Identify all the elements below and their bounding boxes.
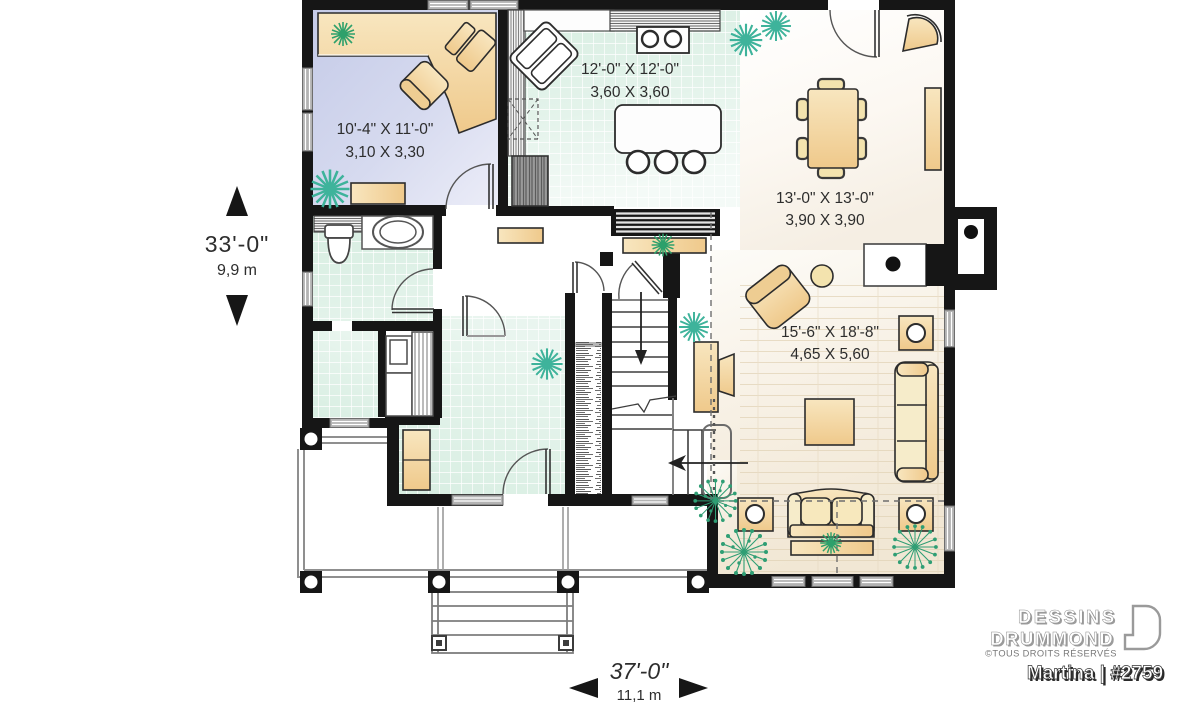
svg-text:4,65 X 5,60: 4,65 X 5,60: [790, 346, 870, 363]
svg-text:11,1 m: 11,1 m: [617, 687, 662, 704]
svg-text:15'-6" X 18'-8": 15'-6" X 18'-8": [781, 324, 879, 341]
svg-text:10'-4" X 11'-0": 10'-4" X 11'-0": [337, 121, 434, 138]
svg-text:13'-0" X 13'-0": 13'-0" X 13'-0": [776, 190, 874, 207]
svg-text:DRUMMOND: DRUMMOND: [990, 628, 1114, 649]
svg-text:12'-0" X 12'-0": 12'-0" X 12'-0": [581, 61, 679, 78]
svg-text:3,60 X 3,60: 3,60 X 3,60: [590, 84, 670, 101]
svg-text:©TOUS DROITS RÉSERVÉS: ©TOUS DROITS RÉSERVÉS: [985, 649, 1117, 659]
svg-text:Martina | #2759: Martina | #2759: [1027, 663, 1163, 684]
svg-text:3,10 X 3,30: 3,10 X 3,30: [345, 144, 425, 161]
svg-text:37'-0": 37'-0": [610, 658, 670, 684]
svg-text:DESSINS: DESSINS: [1018, 606, 1117, 627]
svg-text:33'-0": 33'-0": [205, 231, 270, 257]
svg-text:3,90 X 3,90: 3,90 X 3,90: [785, 212, 865, 229]
svg-text:9,9 m: 9,9 m: [217, 262, 257, 279]
